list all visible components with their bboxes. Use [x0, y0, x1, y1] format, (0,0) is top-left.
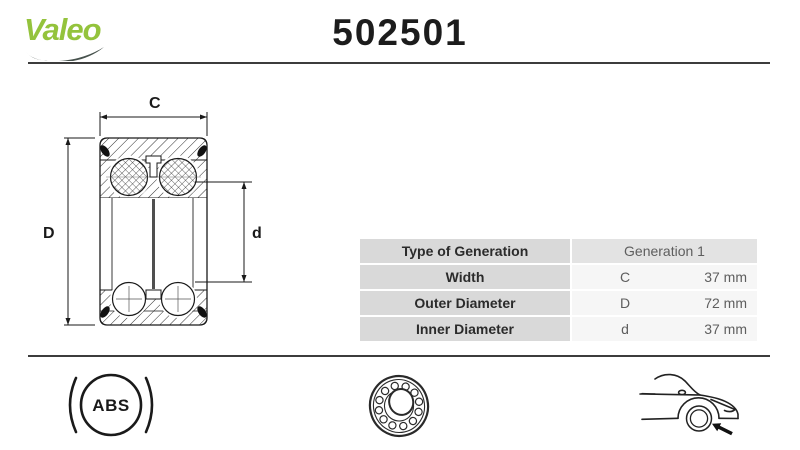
spec-value: 37 mm [704, 317, 757, 341]
abs-label: ABS [92, 396, 129, 415]
dim-label-width-c: C [149, 95, 161, 112]
spec-label: Inner Diameter [360, 317, 570, 341]
abs-icon: ABS [65, 365, 157, 445]
spec-symbol: C [610, 265, 640, 289]
bearing-icon [360, 368, 440, 444]
header-divider [28, 62, 770, 64]
car-front-wheel-icon [622, 362, 782, 447]
spec-label: Width [360, 265, 570, 289]
spec-table: Type of Generation Generation 1 Width C … [360, 239, 757, 343]
spec-value: 72 mm [704, 291, 757, 315]
spec-symbol: d [610, 317, 640, 341]
spec-label: Type of Generation [360, 239, 570, 263]
table-row: Width C 37 mm [360, 265, 757, 289]
part-number: 502501 [0, 12, 800, 54]
footer-divider [28, 355, 770, 357]
table-row: Type of Generation Generation 1 [360, 239, 757, 263]
spec-value: Generation 1 [572, 239, 757, 263]
spec-value: 37 mm [704, 265, 757, 289]
table-row: Outer Diameter D 72 mm [360, 291, 757, 315]
table-row: Inner Diameter d 37 mm [360, 317, 757, 341]
spec-symbol: D [610, 291, 640, 315]
dim-label-inner-d: d [252, 225, 262, 242]
bearing-cross-section-diagram: C D d [30, 88, 280, 340]
product-sheet: Valeo 502501 [0, 0, 800, 450]
dim-label-outer-d: D [43, 225, 55, 242]
spec-label: Outer Diameter [360, 291, 570, 315]
pointer-arrow-icon [712, 423, 733, 435]
